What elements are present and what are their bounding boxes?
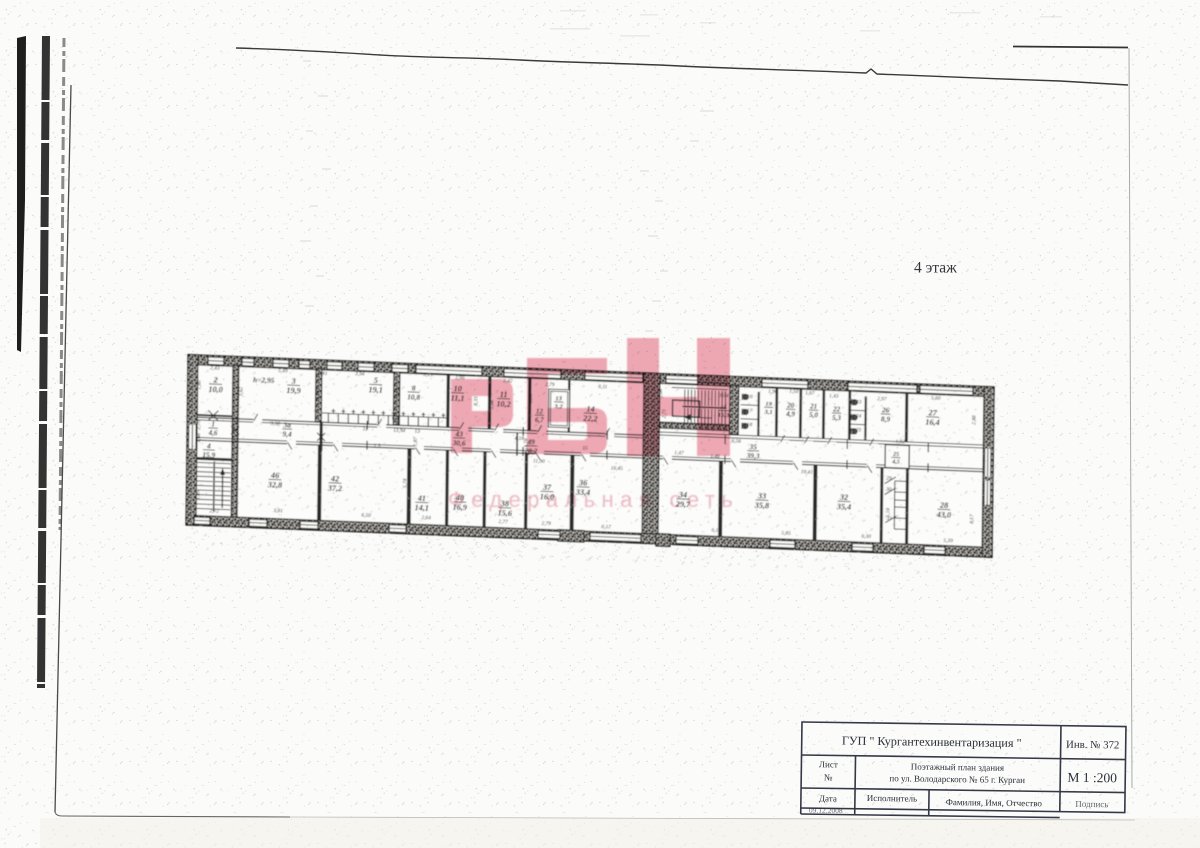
svg-text:09.12.2008: 09.12.2008 <box>809 806 843 815</box>
svg-text:Фамилия, Имя, Отчество: Фамилия, Имя, Отчество <box>946 797 1043 808</box>
svg-text:Инв. № 372: Инв. № 372 <box>1066 739 1119 752</box>
svg-text:М 1 :200: М 1 :200 <box>1067 770 1117 786</box>
svg-text:по ул. Володарского № 65 г.: по ул. Володарского № 65 г. Курган <box>889 773 1025 785</box>
svg-text:Федеральная сеть: Федеральная сеть <box>448 487 739 512</box>
svg-text:4 этаж: 4 этаж <box>914 260 957 277</box>
svg-text:Лист: Лист <box>819 759 838 769</box>
svg-text:Дата: Дата <box>819 793 837 803</box>
svg-text:Исполнитель: Исполнитель <box>867 793 917 804</box>
svg-text:Подпись: Подпись <box>1075 799 1108 809</box>
svg-text:№: № <box>824 772 833 782</box>
svg-text:ГУП " Кургантехинвентаризация: ГУП " Кургантехинвентаризация " <box>842 734 1022 751</box>
svg-text:Поэтажный план здания: Поэтажный план здания <box>911 762 1004 773</box>
